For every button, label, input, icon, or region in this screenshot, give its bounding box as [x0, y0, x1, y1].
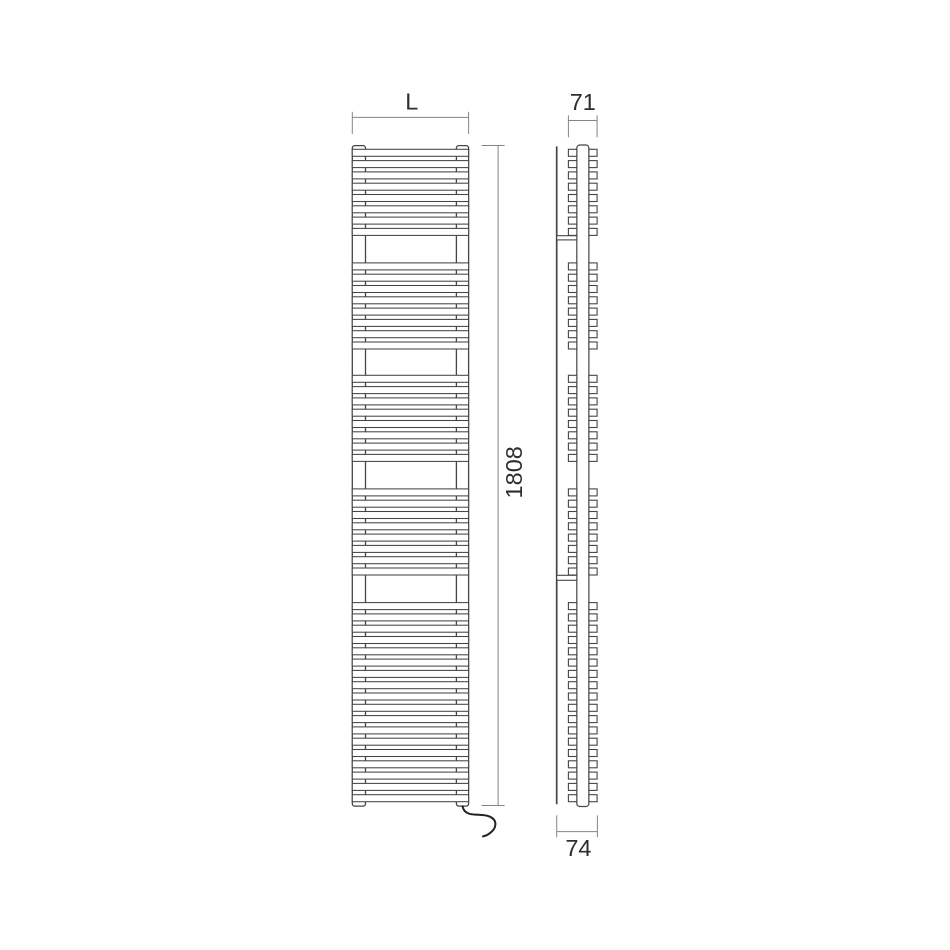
- svg-text:71: 71: [570, 89, 596, 115]
- svg-text:L: L: [405, 89, 418, 115]
- svg-text:74: 74: [565, 835, 591, 861]
- svg-text:1808: 1808: [501, 446, 527, 498]
